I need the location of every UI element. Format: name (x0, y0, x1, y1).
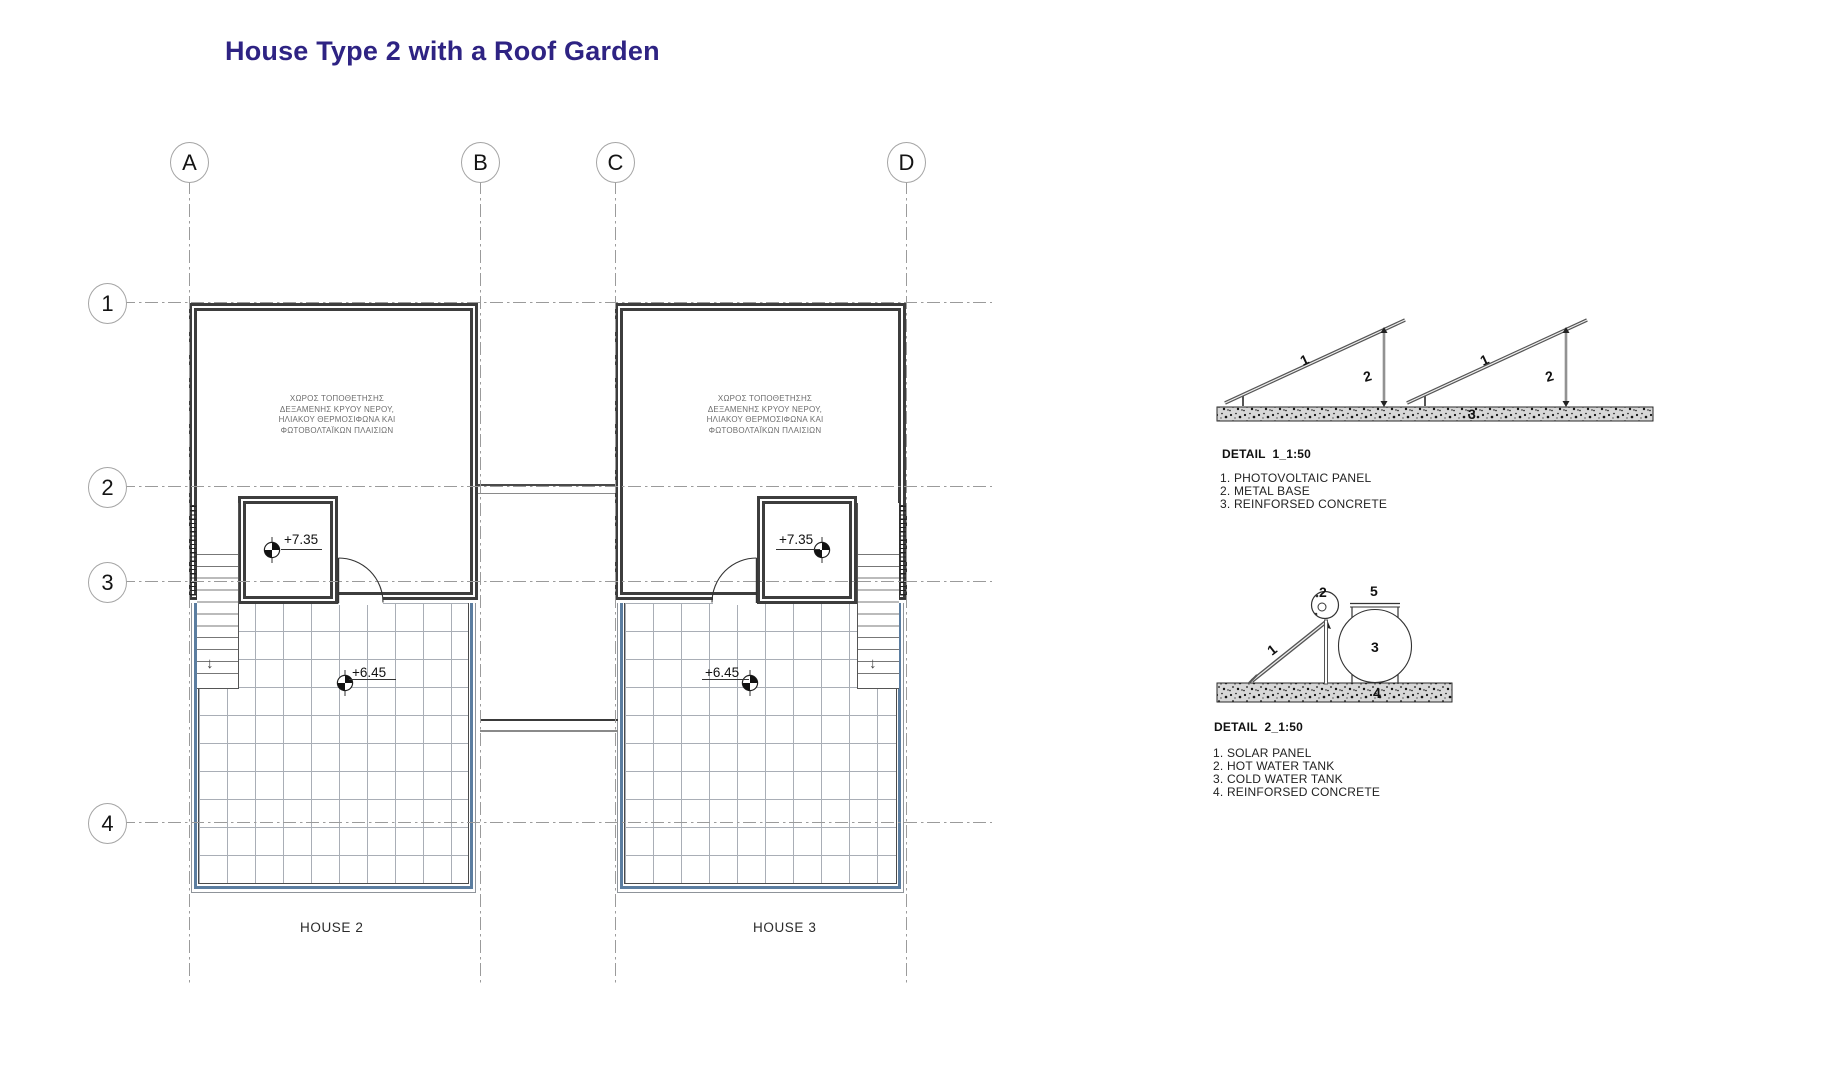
grid-line-1 (122, 302, 992, 303)
detail1-callout-panel: 1 (1298, 351, 1312, 369)
reinforced-concrete-strip (1217, 683, 1452, 702)
house2-room-note: ΧΩΡΟΣ ΤΟΠΟΘΕΤΗΣΗΣ ΔΕΞΑΜΕΝΗΣ ΚΡΥΟΥ ΝΕΡΟΥ,… (227, 394, 447, 436)
house3-door-opening (713, 595, 757, 605)
detail2-title: DETAIL 2_1:50 (1214, 720, 1303, 734)
grid-column-bubble-c: C (596, 142, 635, 183)
pv-panel-assembly-1 (1225, 320, 1405, 407)
detail2-callout-solar-panel: 1 (1264, 641, 1280, 659)
grid-line-4 (122, 822, 992, 823)
grid-column-label-c: C (608, 150, 624, 176)
house2-room-level: +7.35 (284, 532, 318, 547)
detail2-legend: 1. SOLAR PANEL 2. HOT WATER TANK 3. COLD… (1213, 747, 1380, 799)
detail1-callout-base: 2 (1361, 367, 1373, 385)
detail2-drawing: 1 2 3 4 5 (1215, 580, 1515, 710)
house3-stair (857, 503, 899, 689)
lower-connector-line-1 (480, 719, 618, 721)
legend-item: 3. REINFORSED CONCRETE (1220, 498, 1387, 511)
house2-label: HOUSE 2 (300, 920, 363, 935)
grid-line-2 (122, 486, 992, 487)
detail1-title: DETAIL 1_1:50 (1222, 447, 1311, 461)
grid-row-label-1: 1 (101, 291, 113, 317)
grid-row-bubble-4: 4 (88, 803, 127, 844)
house2-stair-treads (197, 543, 238, 682)
house2-door-opening (339, 595, 383, 605)
house2-stair-railing (189, 505, 197, 599)
detail2-callout-concrete: 4 (1373, 685, 1381, 701)
grid-column-bubble-d: D (887, 142, 926, 183)
pv-panel-assembly-2 (1407, 320, 1587, 407)
grid-column-bubble-b: B (461, 142, 500, 183)
house3-garden-level: +6.45 (705, 665, 739, 680)
house3-garden-level-line (702, 679, 749, 680)
reinforced-concrete-strip (1217, 407, 1653, 421)
detail1-callout-panel-2: 1 (1478, 351, 1492, 369)
detail1-callout-base-2: 2 (1543, 367, 1555, 385)
grid-line-3 (122, 581, 992, 582)
grid-row-bubble-2: 2 (88, 467, 127, 508)
house2-room-level-line (281, 549, 322, 550)
tank-post (1325, 620, 1328, 684)
grid-row-bubble-1: 1 (88, 283, 127, 324)
solar-panel (1248, 621, 1331, 684)
house2-stair-down-arrow: ↓ (206, 655, 214, 672)
house2-stair (197, 503, 239, 689)
house3-room-level-line (776, 549, 820, 550)
detail1-legend: 1. PHOTOVOLTAIC PANEL 2. METAL BASE 3. R… (1220, 472, 1387, 511)
legend-item: 4. REINFORSED CONCRETE (1213, 786, 1380, 799)
grid-row-label-3: 3 (101, 570, 113, 596)
house3-label: HOUSE 3 (753, 920, 816, 935)
grid-row-label-2: 2 (101, 475, 113, 501)
detail2-callout-cold-tank: 3 (1371, 639, 1379, 655)
blueprint-page: House Type 2 with a Roof Garden A B C D … (0, 0, 1842, 1090)
detail2-callout-plate: 5 (1370, 583, 1378, 599)
grid-column-label-d: D (899, 150, 915, 176)
detail1-drawing: 1 2 1 2 3 (1215, 300, 1660, 425)
house3-room-note: ΧΩΡΟΣ ΤΟΠΟΘΕΤΗΣΗΣ ΔΕΞΑΜΕΝΗΣ ΚΡΥΟΥ ΝΕΡΟΥ,… (655, 394, 875, 436)
house3-room-level: +7.35 (779, 532, 813, 547)
detail2-callout-hot-tank: 2 (1319, 584, 1327, 600)
grid-column-label-b: B (473, 150, 488, 176)
grid-row-bubble-3: 3 (88, 562, 127, 603)
lower-connector-line-2 (480, 730, 618, 732)
page-title: House Type 2 with a Roof Garden (225, 36, 660, 67)
grid-row-label-4: 4 (101, 811, 113, 837)
house3-stair-treads (858, 543, 899, 682)
upper-connector-line-2 (478, 493, 617, 495)
house3-stair-down-arrow: ↓ (869, 655, 877, 672)
grid-column-bubble-a: A (170, 142, 209, 183)
detail1-callout-concrete: 3 (1468, 406, 1476, 422)
house2-garden-level: +6.45 (352, 665, 386, 680)
house2-garden-level-line (349, 679, 396, 680)
grid-column-label-a: A (182, 150, 197, 176)
